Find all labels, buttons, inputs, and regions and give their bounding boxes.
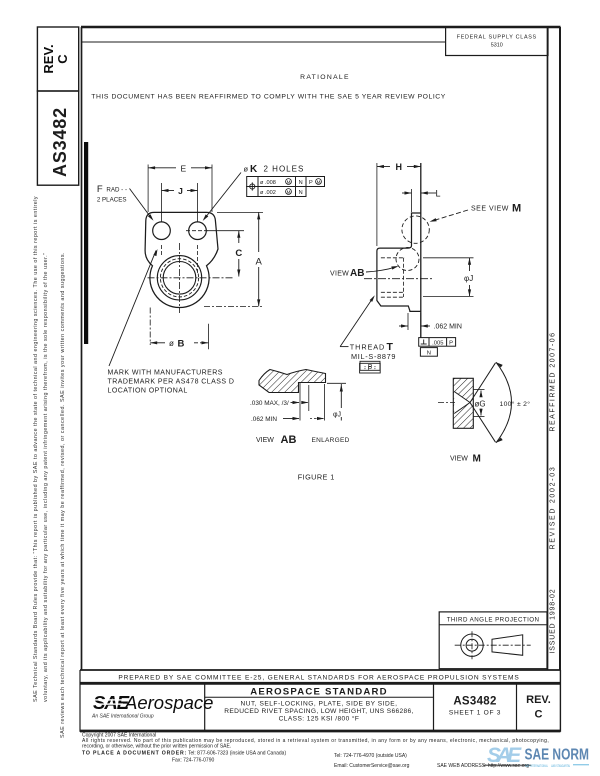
svg-text:FIGURE 1: FIGURE 1: [298, 473, 335, 482]
svg-text:SAE Technical Standards Board: SAE Technical Standards Board Rules prov…: [33, 196, 39, 702]
svg-text:P: P: [449, 340, 453, 346]
svg-text:E: E: [180, 163, 186, 173]
svg-text:CLASS: 125 KSI /800 °F: CLASS: 125 KSI /800 °F: [279, 714, 360, 722]
svg-text:MIL-S-8879: MIL-S-8879: [351, 352, 396, 361]
svg-text:N: N: [299, 180, 303, 186]
svg-text:AS3482: AS3482: [50, 107, 70, 177]
svg-text:REV.: REV.: [526, 694, 551, 706]
svg-text:φJ: φJ: [464, 274, 473, 283]
svg-text:øG: øG: [475, 400, 486, 409]
svg-text:.062 MIN: .062 MIN: [434, 324, 462, 331]
svg-text:AEROSPACE STANDARD: AEROSPACE STANDARD: [250, 687, 387, 698]
svg-text:SHEET 1 OF 3: SHEET 1 OF 3: [449, 710, 501, 717]
svg-text:F: F: [97, 184, 103, 195]
svg-text:M: M: [473, 454, 481, 465]
svg-text:An SAE International Group: An SAE International Group: [91, 714, 154, 720]
svg-text:VIEW: VIEW: [330, 271, 349, 278]
svg-text:J: J: [178, 186, 183, 196]
svg-text:VIEW: VIEW: [256, 437, 274, 444]
svg-text:ø .008: ø .008: [260, 180, 276, 186]
svg-text:THREAD: THREAD: [350, 342, 385, 351]
svg-text:.030 MAX, /3/: .030 MAX, /3/: [250, 400, 289, 407]
svg-text:100° ± 2°: 100° ± 2°: [500, 400, 531, 408]
svg-text:N: N: [427, 350, 431, 356]
svg-text:REDUCED RIVET SPACING, LOW HEI: REDUCED RIVET SPACING, LOW HEIGHT, UNS S…: [224, 708, 414, 715]
svg-text:RATIONALE: RATIONALE: [300, 74, 350, 81]
svg-text:UAB STANDARTAI: UAB STANDARTAI: [551, 764, 570, 768]
svg-text:2 HOLES: 2 HOLES: [264, 165, 305, 174]
svg-text:5310: 5310: [491, 43, 503, 49]
svg-text:AB: AB: [281, 434, 297, 446]
svg-text:ENLARGED: ENLARGED: [312, 437, 350, 444]
svg-text:2 PLACES: 2 PLACES: [97, 197, 127, 204]
svg-text:voluntary, and its applicabili: voluntary, and its applicability and sui…: [43, 253, 49, 702]
svg-text:SAE INTERNATIONAL: SAE INTERNATIONAL: [525, 764, 548, 768]
svg-text:ø: ø: [169, 339, 174, 348]
svg-text:A: A: [256, 257, 263, 268]
svg-text:AB: AB: [350, 268, 364, 279]
svg-text:TO PLACE A DOCUMENT ORDER:: TO PLACE A DOCUMENT ORDER:: [82, 751, 187, 757]
svg-text:RAD - -: RAD - -: [106, 186, 127, 193]
svg-text:SAE NORM: SAE NORM: [525, 747, 590, 764]
svg-text:TRADEMARK PER AS478 CLASS D: TRADEMARK PER AS478 CLASS D: [108, 379, 235, 386]
svg-text:C: C: [235, 248, 242, 259]
svg-text:P: P: [309, 180, 313, 186]
svg-text:Tel: 877-606-7323 (inside USA: Tel: 877-606-7323 (inside USA and Canada…: [188, 751, 286, 757]
svg-text:THIRD ANGLE PROJECTION: THIRD ANGLE PROJECTION: [447, 616, 540, 623]
svg-text:THIS DOCUMENT HAS BEEN REAFFIR: THIS DOCUMENT HAS BEEN REAFFIRMED TO COM…: [91, 94, 446, 101]
svg-text:N: N: [299, 190, 303, 196]
svg-text:ø .002: ø .002: [260, 190, 276, 196]
svg-text:Tel: 724-776-4970 (outside USA: Tel: 724-776-4970 (outside USA): [334, 753, 407, 759]
svg-text:ISSUED 1998-02: ISSUED 1998-02: [550, 589, 557, 654]
svg-text:AS3482: AS3482: [453, 696, 496, 708]
svg-text:- P -: - P -: [364, 363, 376, 370]
svg-text:Fax: 724-776-0790: Fax: 724-776-0790: [172, 758, 214, 764]
svg-text:.062 MIN: .062 MIN: [251, 416, 277, 423]
svg-text:L: L: [435, 188, 440, 198]
svg-text:M: M: [317, 180, 321, 185]
svg-text:φJ: φJ: [333, 412, 341, 419]
svg-text:FEDERAL SUPPLY CLASS: FEDERAL SUPPLY CLASS: [457, 35, 537, 41]
svg-text:C: C: [55, 54, 70, 64]
svg-text:LOCATION OPTIONAL: LOCATION OPTIONAL: [108, 388, 188, 395]
svg-text:Email: CustomerService@sae.org: Email: CustomerService@sae.org: [334, 763, 410, 769]
svg-text:recording, or otherwise, witho: recording, or otherwise, without the pri…: [82, 743, 231, 749]
svg-text:Aerospace: Aerospace: [124, 692, 213, 713]
svg-text:MARK WITH MANUFACTURERS: MARK WITH MANUFACTURERS: [108, 370, 223, 377]
svg-text:PREPARED BY SAE COMMITTEE E-25: PREPARED BY SAE COMMITTEE E-25, GENERAL …: [118, 675, 519, 682]
svg-text:REVISED 2002-03: REVISED 2002-03: [550, 466, 557, 550]
svg-text:REV.: REV.: [41, 44, 56, 73]
svg-text:M: M: [512, 203, 521, 215]
svg-text:M: M: [287, 180, 291, 185]
svg-text:C: C: [535, 709, 543, 721]
svg-text:K: K: [250, 164, 258, 175]
svg-text:REAFFIRMED 2007-06: REAFFIRMED 2007-06: [550, 331, 557, 431]
svg-text:SAE reviews each technical rep: SAE reviews each technical report at lea…: [60, 252, 66, 738]
svg-text:M: M: [287, 190, 291, 195]
svg-text:VIEW: VIEW: [450, 456, 468, 463]
svg-text:NUT, SELF-LOCKING, PLATE, SIDE: NUT, SELF-LOCKING, PLATE, SIDE BY SIDE,: [240, 700, 397, 707]
svg-text:ø: ø: [244, 165, 249, 174]
svg-text:H: H: [396, 162, 403, 172]
svg-text:.005: .005: [432, 340, 443, 346]
svg-text:SEE VIEW: SEE VIEW: [471, 206, 509, 213]
svg-text:B: B: [178, 339, 185, 350]
